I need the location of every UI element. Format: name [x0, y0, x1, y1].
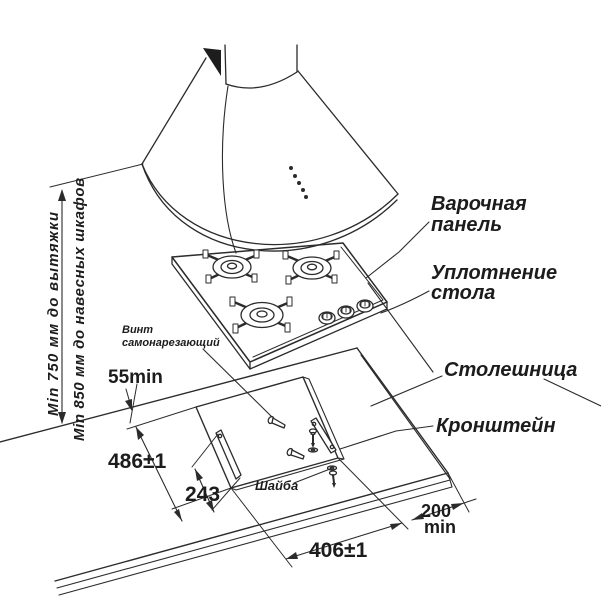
burner-rear-right: [283, 251, 339, 284]
label-bracket: Кронштейн: [436, 415, 556, 437]
label-washer: Шайба: [255, 478, 298, 493]
range-hood: [142, 45, 398, 253]
mounting-bracket-left: [216, 430, 241, 479]
burner-front: [230, 297, 292, 333]
hood-chimney: [203, 45, 297, 84]
label-screw-line2: самонарезающий: [122, 337, 220, 349]
control-knob: [357, 300, 373, 312]
leader-hob: [366, 222, 429, 278]
self-tapping-screw: [267, 416, 285, 428]
dim-label-200-min: min: [424, 517, 456, 537]
label-seal-line2: стола: [431, 282, 495, 304]
installation-diagram-svg: Варочная панель Уплотнение стола Столешн…: [0, 0, 601, 600]
screw-side: [286, 448, 304, 459]
leader-countertop: [371, 376, 442, 406]
dim-label-406: 406±1: [309, 539, 368, 562]
hood-body: [142, 58, 398, 253]
label-hob-line1: Варочная: [431, 193, 527, 215]
burner-rear-left: [203, 250, 259, 283]
screw-washer-set-top: [309, 429, 318, 452]
control-knob: [338, 306, 354, 318]
installation-diagram-page: Варочная панель Уплотнение стола Столешн…: [0, 0, 601, 600]
dim-label-min750-hood: Min 750 мм до вытяжки: [45, 211, 62, 416]
dim-label-486: 486±1: [108, 450, 167, 473]
label-hob-line2: панель: [431, 214, 502, 236]
dim-55min: [125, 384, 137, 423]
leader-washer: [294, 469, 330, 483]
leader-screw: [203, 349, 272, 417]
control-knob: [319, 312, 335, 324]
hood-dark-triangle: [203, 48, 221, 76]
label-seal-line1: Уплотнение: [431, 262, 557, 284]
label-countertop: Столешница: [444, 359, 577, 381]
hood-control-dots: [289, 166, 308, 199]
label-screw-line1: Винт: [122, 324, 153, 336]
dim-label-min850-cabinets: Min 850 мм до навесных шкафов: [71, 177, 88, 441]
dim-label-243: 243: [185, 483, 220, 506]
dim-label-55min: 55min: [108, 367, 163, 388]
leader-bracket: [340, 426, 433, 449]
leader-seal: [381, 291, 429, 313]
countertop: [0, 348, 452, 595]
